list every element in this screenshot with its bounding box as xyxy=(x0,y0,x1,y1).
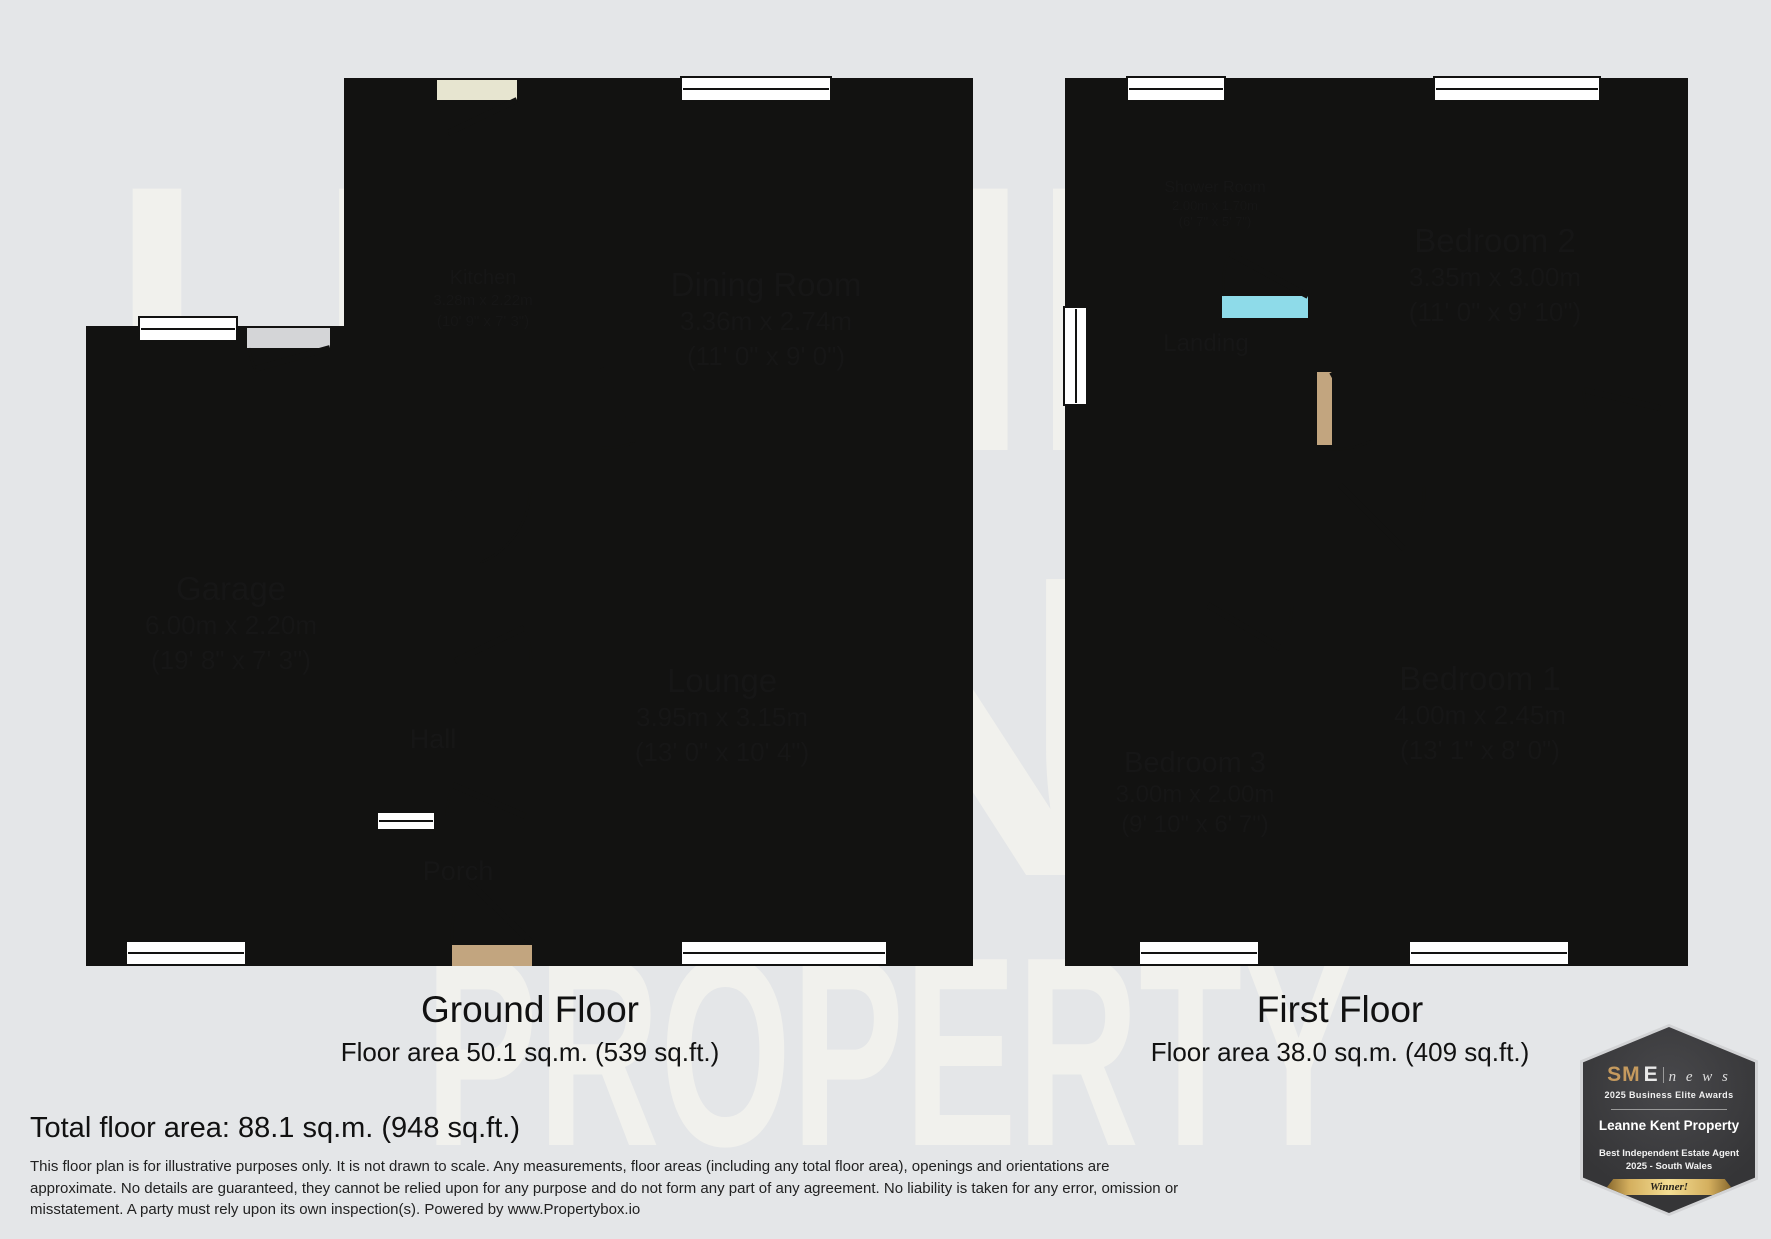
room-dim-imperial: (13' 1" x 8' 0") xyxy=(1330,733,1630,768)
stairs-wall xyxy=(1187,388,1197,585)
room-name: Bedroom 3 xyxy=(1045,746,1345,780)
total-floor-area: Total floor area: 88.1 sq.m. (948 sq.ft.… xyxy=(30,1112,520,1145)
floor-title-text: First Floor xyxy=(1090,988,1590,1032)
dining-room-label: Dining Room 3.36m x 2.74m (11' 0" x 9' 0… xyxy=(616,266,916,374)
room-name: Garage xyxy=(81,570,381,608)
badge-company-name: Leanne Kent Property xyxy=(1583,1118,1755,1133)
bedroom1-top-wall xyxy=(1317,472,1340,485)
room-dim-metric: 3.28m x 2.22m xyxy=(373,290,593,311)
room-name: Porch xyxy=(423,856,494,886)
ground-floor-title: Ground Floor Floor area 50.1 sq.m. (539 … xyxy=(280,988,780,1072)
dining-window xyxy=(680,76,832,102)
disclaimer-line: This floor plan is for illustrative purp… xyxy=(30,1156,1178,1178)
room-name: Hall xyxy=(410,724,457,754)
bedroom2-door-opening xyxy=(1317,372,1332,445)
room-dim-metric: 3.36m x 2.74m xyxy=(616,304,916,339)
hall-lounge-wall xyxy=(443,654,455,668)
room-dim-imperial: (13' 0" x 10' 4") xyxy=(572,735,872,770)
lounge-chimney xyxy=(920,660,950,855)
room-dim-metric: 2.00m x 1.70m xyxy=(1105,198,1325,214)
kitchen-label: Kitchen 3.28m x 2.22m (10' 9" x 7' 3") xyxy=(373,266,593,332)
room-name: Lounge xyxy=(572,662,872,700)
dining-lounge-wall xyxy=(855,492,950,510)
disclaimer-line: approximate. No details are guaranteed, … xyxy=(30,1178,1178,1200)
bedroom1-window xyxy=(1408,940,1570,966)
sme-news-logo: SME n e w s xyxy=(1583,1063,1755,1087)
shower-window xyxy=(1126,76,1226,102)
room-name: Dining Room xyxy=(616,266,916,304)
landing-label: Landing xyxy=(1126,330,1286,358)
divider xyxy=(1611,1109,1728,1110)
garage-window xyxy=(138,316,238,342)
porch-door-opening xyxy=(452,945,532,966)
room-name: Landing xyxy=(1163,330,1248,357)
room-name: Kitchen xyxy=(373,266,593,290)
kitchen-back-door-opening xyxy=(437,80,517,100)
hall-label: Hall xyxy=(373,724,493,755)
kitchen-hall-wall xyxy=(532,477,663,491)
bedroom1-top-wall xyxy=(1420,472,1665,485)
news-wordmark: n e w s xyxy=(1669,1069,1731,1086)
sme-logo-light: E xyxy=(1644,1063,1658,1087)
first-floor-title: First Floor Floor area 38.0 sq.m. (409 s… xyxy=(1090,988,1590,1072)
disclaimer-line: misstatement. A party must rely upon its… xyxy=(30,1199,1178,1221)
room-dim-imperial: (6' 7" x 5' 7") xyxy=(1105,214,1325,230)
room-name: Bedroom 2 xyxy=(1345,222,1645,260)
bedroom2-window xyxy=(1433,76,1601,102)
badge-awards-line: 2025 Business Elite Awards xyxy=(1583,1090,1755,1100)
shower-room-label: Shower Room 2.00m x 1.70m (6' 7" x 5' 7"… xyxy=(1105,178,1325,230)
floor-area-text: Floor area 50.1 sq.m. (539 sq.ft.) xyxy=(280,1032,780,1072)
room-dim-metric: 4.00m x 2.45m xyxy=(1330,698,1630,733)
room-dim-metric: 3.35m x 3.00m xyxy=(1345,260,1645,295)
hall-lounge-wall xyxy=(551,668,563,813)
floor-title-text: Ground Floor xyxy=(280,988,780,1032)
garage-door-opening xyxy=(247,328,330,348)
room-dim-imperial: (19' 8" x 7' 3") xyxy=(81,643,381,678)
room-dim-metric: 3.00m x 2.00m xyxy=(1045,780,1345,810)
bedroom2-label: Bedroom 2 3.35m x 3.00m (11' 0" x 9' 10"… xyxy=(1345,222,1645,330)
room-dim-imperial: (11' 0" x 9' 10") xyxy=(1345,295,1645,330)
floorplan-page: LEANNE KENT PROPERTY Kitchen 3.28m x 2.2… xyxy=(0,0,1771,1239)
disclaimer-text: This floor plan is for illustrative purp… xyxy=(30,1156,1178,1221)
hall-front-window xyxy=(376,811,436,831)
landing-bedroom2-wall xyxy=(1317,445,1332,472)
landing-window xyxy=(1063,306,1088,406)
room-dim-imperial: (11' 0" x 9' 0") xyxy=(616,339,916,374)
porch-label: Porch xyxy=(398,856,518,887)
shower-bedroom2-wall xyxy=(1317,100,1332,370)
garage-window xyxy=(125,940,247,966)
sme-logo-gold: SM xyxy=(1607,1063,1641,1087)
hall-porch-wall xyxy=(525,813,553,830)
kitchen-hall-wall xyxy=(344,477,450,491)
award-badge: SME n e w s 2025 Business Elite Awards L… xyxy=(1580,1024,1758,1216)
hall-lounge-wall xyxy=(537,654,563,668)
badge-award-region: 2025 - South Wales xyxy=(1583,1161,1755,1172)
divider xyxy=(1663,1067,1664,1083)
shower-landing-wall xyxy=(1088,296,1222,318)
room-name: Shower Room xyxy=(1105,178,1325,198)
shower-door-opening xyxy=(1222,296,1308,318)
porch-lounge-wall xyxy=(553,813,575,966)
ground-floor-outline xyxy=(344,78,973,966)
lounge-window xyxy=(680,940,888,966)
bedroom3-top-wall xyxy=(1088,585,1208,605)
lounge-label: Lounge 3.95m x 3.15m (13' 0" x 10' 4") xyxy=(572,662,872,770)
badge-body: SME n e w s 2025 Business Elite Awards L… xyxy=(1583,1027,1755,1213)
badge-award-title: Best Independent Estate Agent xyxy=(1583,1147,1755,1160)
bedroom1-label: Bedroom 1 4.00m x 2.45m (13' 1" x 8' 0") xyxy=(1330,660,1630,768)
bedroom3-window xyxy=(1138,940,1260,966)
winner-ribbon: Winner! xyxy=(1607,1179,1731,1195)
garage-label: Garage 6.00m x 2.20m (19' 8" x 7' 3") xyxy=(81,570,381,678)
room-dim-metric: 3.95m x 3.15m xyxy=(572,700,872,735)
room-dim-imperial: (9' 10" x 6' 7") xyxy=(1045,810,1345,840)
room-dim-imperial: (10' 9" x 7' 3") xyxy=(373,311,593,332)
bedroom3-label: Bedroom 3 3.00m x 2.00m (9' 10" x 6' 7") xyxy=(1045,746,1345,840)
room-dim-metric: 6.00m x 2.20m xyxy=(81,608,381,643)
hall-porch-wall xyxy=(344,813,378,830)
floor-area-text: Floor area 38.0 sq.m. (409 sq.ft.) xyxy=(1090,1032,1590,1072)
room-name: Bedroom 1 xyxy=(1330,660,1630,698)
